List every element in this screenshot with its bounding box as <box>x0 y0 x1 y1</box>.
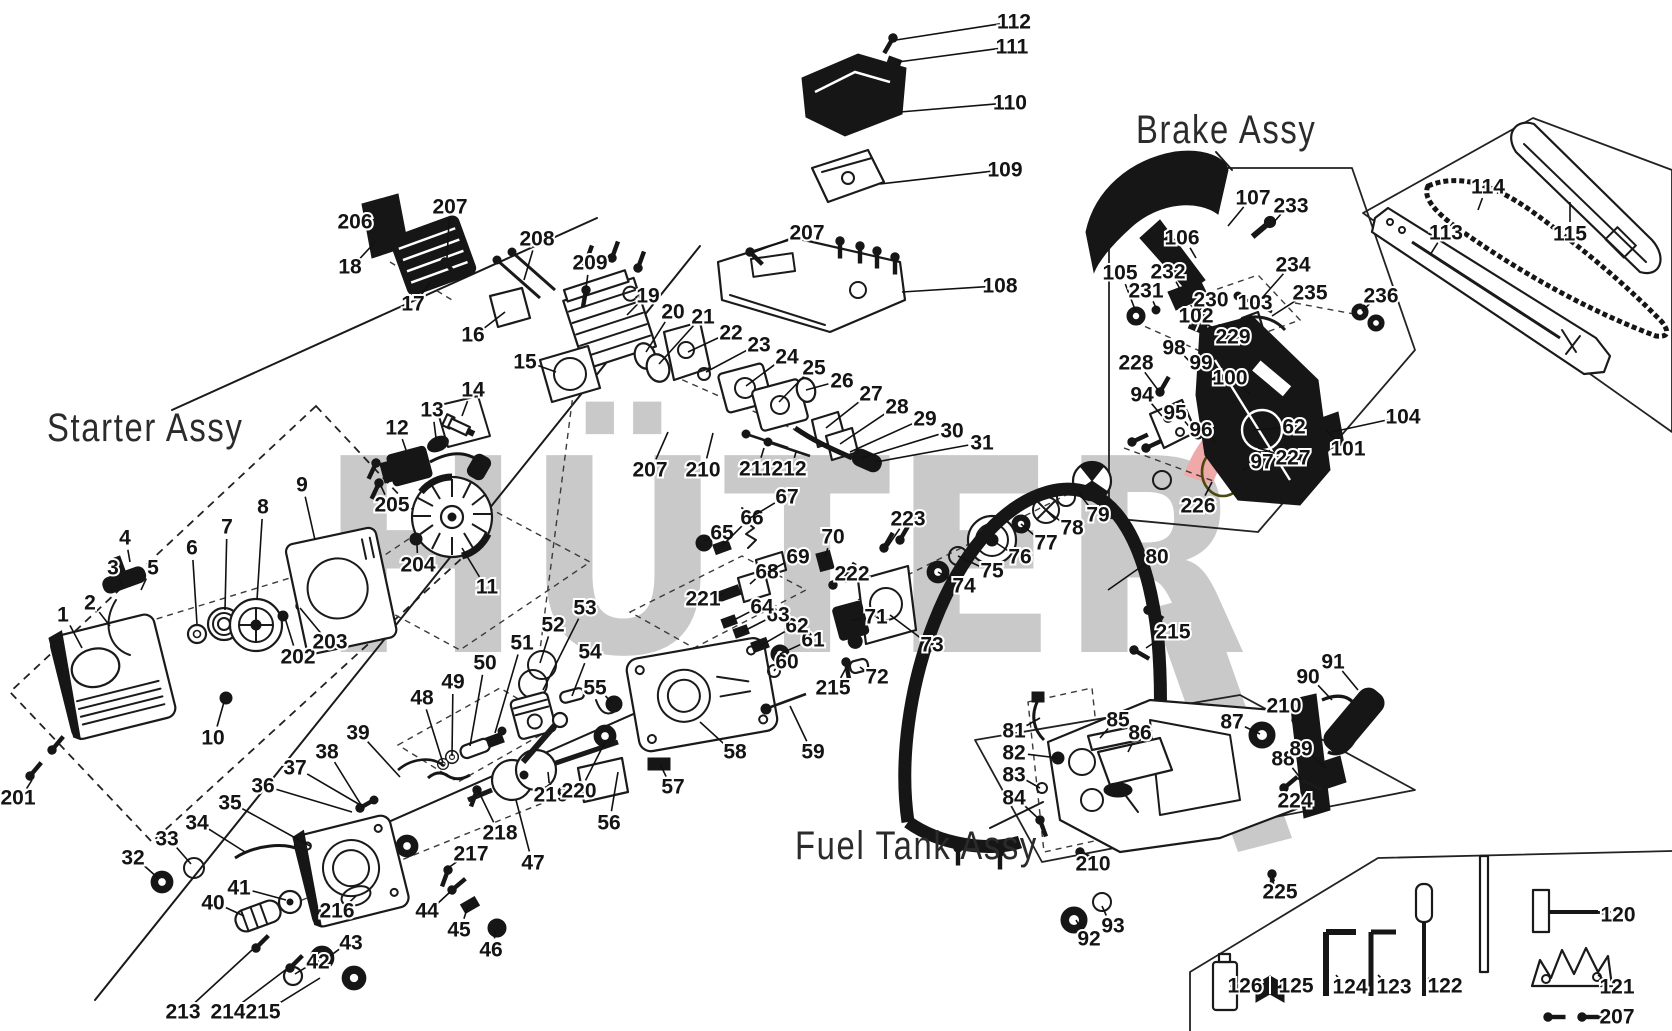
part-label-207: 207 <box>632 459 667 482</box>
part-label-3: 3 <box>107 557 119 580</box>
part-label-234: 234 <box>1275 254 1310 277</box>
part-label-62: 62 <box>1282 416 1305 439</box>
part-label-12: 12 <box>385 417 408 440</box>
part-label-30: 30 <box>940 420 963 443</box>
leader-line <box>1478 198 1482 210</box>
leader-line <box>128 550 130 562</box>
part-label-204: 204 <box>400 554 435 577</box>
part-label-20: 20 <box>661 301 684 324</box>
leader-line <box>239 968 288 1005</box>
leader-line <box>285 618 294 646</box>
part-label-82: 82 <box>1002 742 1025 765</box>
leader-line <box>368 742 400 777</box>
part-label-53: 53 <box>573 597 596 620</box>
part-label-211: 211 <box>739 458 773 481</box>
part-label-93: 93 <box>1101 915 1124 938</box>
air-filter-cover <box>802 54 906 136</box>
leader-line <box>217 702 224 727</box>
part-label-32: 32 <box>121 847 144 870</box>
part-label-122: 122 <box>1427 975 1462 998</box>
part-label-213: 213 <box>165 1001 200 1024</box>
part-label-66: 66 <box>740 507 763 530</box>
exploded-parts-diagram: HÜTER <box>0 0 1672 1031</box>
part-label-41: 41 <box>227 877 251 900</box>
part-label-126: 126 <box>1227 975 1262 998</box>
part-label-212: 212 <box>771 458 806 481</box>
part-label-67: 67 <box>775 486 798 509</box>
leader-line <box>900 104 996 112</box>
part-label-59: 59 <box>801 741 824 764</box>
part-label-100: 100 <box>1212 367 1247 390</box>
starter-assy-title: Starter Assy <box>47 406 243 451</box>
part-label-207: 207 <box>1599 1006 1634 1029</box>
part-label-55: 55 <box>583 677 607 700</box>
part-label-120: 120 <box>1600 904 1635 927</box>
part-label-50: 50 <box>473 652 496 675</box>
leader-line <box>144 865 158 878</box>
part-label-10: 10 <box>201 727 224 750</box>
part-label-103: 103 <box>1237 292 1272 315</box>
part-label-109: 109 <box>987 159 1022 182</box>
part-label-92: 92 <box>1077 928 1100 951</box>
screw-icon <box>881 32 899 55</box>
part-label-90: 90 <box>1296 666 1319 689</box>
part-label-112: 112 <box>997 11 1031 34</box>
leader-line <box>880 171 991 184</box>
part-label-16: 16 <box>461 324 484 347</box>
part-label-5: 5 <box>147 557 159 580</box>
part-label-81: 81 <box>1002 720 1026 743</box>
part-label-22: 22 <box>719 322 742 345</box>
diagram-canvas: HÜTER <box>0 0 1672 1031</box>
rear-grip <box>1319 684 1388 759</box>
part-label-230: 230 <box>1193 289 1228 312</box>
part-label-80: 80 <box>1145 546 1168 569</box>
leader-line <box>209 829 245 852</box>
fuel-cap <box>1249 722 1275 748</box>
toolkit-box-boundary <box>1190 851 1672 1031</box>
part-label-47: 47 <box>521 852 544 875</box>
muffler-gasket <box>490 288 530 327</box>
leader-line <box>305 497 315 540</box>
part-label-208: 208 <box>519 228 554 251</box>
part-label-72: 72 <box>865 666 888 689</box>
part-label-58: 58 <box>723 741 747 764</box>
leader-line <box>1262 274 1283 298</box>
part-label-224: 224 <box>1277 790 1312 813</box>
starter-cover <box>48 609 177 741</box>
part-label-94: 94 <box>1130 384 1154 407</box>
file <box>1480 856 1488 972</box>
leader-line <box>452 694 453 756</box>
part-label-79: 79 <box>1086 504 1109 527</box>
leader-line <box>438 892 450 903</box>
part-label-221: 221 <box>685 588 720 611</box>
bar-chain-boundary <box>1363 118 1672 432</box>
part-label-40: 40 <box>201 892 224 915</box>
part-label-7: 7 <box>221 516 233 539</box>
part-label-56: 56 <box>597 812 620 835</box>
part-label-9: 9 <box>296 474 308 497</box>
part-label-115: 115 <box>1553 223 1587 246</box>
part-label-34: 34 <box>185 812 209 835</box>
leader-line <box>193 950 252 1004</box>
part-label-220: 220 <box>561 780 596 803</box>
part-label-232: 232 <box>1150 261 1185 284</box>
part-label-48: 48 <box>410 687 434 710</box>
part-label-104: 104 <box>1385 406 1420 429</box>
part-label-83: 83 <box>1002 764 1025 787</box>
part-label-215: 215 <box>245 1001 280 1024</box>
part-label-28: 28 <box>885 396 909 419</box>
part-label-101: 101 <box>1330 438 1365 461</box>
leader-line <box>257 519 262 600</box>
part-label-18: 18 <box>338 256 362 279</box>
part-label-108: 108 <box>982 275 1017 298</box>
part-label-17: 17 <box>401 293 424 316</box>
part-label-25: 25 <box>802 357 826 380</box>
part-label-31: 31 <box>970 432 994 455</box>
part-label-84: 84 <box>1002 787 1026 810</box>
part-label-207: 207 <box>789 222 824 245</box>
part-label-74: 74 <box>952 575 976 598</box>
part-label-75: 75 <box>980 560 1004 583</box>
part-label-43: 43 <box>339 932 362 955</box>
part-label-77: 77 <box>1034 532 1057 555</box>
part-label-106: 106 <box>1164 227 1199 250</box>
part-label-60: 60 <box>775 651 798 674</box>
part-label-96: 96 <box>1189 419 1212 442</box>
part-label-95: 95 <box>1163 402 1187 425</box>
leader-line <box>902 287 986 292</box>
part-label-4: 4 <box>119 527 131 550</box>
leader-line <box>335 762 363 808</box>
part-label-2: 2 <box>84 592 96 615</box>
part-label-205: 205 <box>374 494 409 517</box>
part-label-210: 210 <box>1266 695 1301 718</box>
part-label-42: 42 <box>306 951 329 974</box>
part-label-11: 11 <box>476 576 499 599</box>
part-label-14: 14 <box>461 379 485 402</box>
part-label-24: 24 <box>775 346 799 369</box>
part-label-99: 99 <box>1189 352 1212 375</box>
leader-line <box>1228 207 1244 226</box>
part-label-124: 124 <box>1332 976 1367 999</box>
part-label-216: 216 <box>319 900 354 923</box>
part-label-121: 121 <box>1599 976 1634 999</box>
part-label-52: 52 <box>541 614 564 637</box>
part-label-51: 51 <box>510 632 534 655</box>
fuel-tank-assy-title: Fuel Tank Assy <box>795 824 1038 869</box>
part-label-71: 71 <box>864 606 888 629</box>
part-label-217: 217 <box>453 843 488 866</box>
part-label-26: 26 <box>830 370 853 393</box>
leader-line <box>225 539 227 610</box>
leader-line <box>516 800 529 851</box>
part-label-35: 35 <box>218 792 242 815</box>
part-label-36: 36 <box>251 775 274 798</box>
leader-line <box>1250 314 1251 318</box>
leader-line <box>1342 671 1358 690</box>
part-label-13: 13 <box>420 399 443 422</box>
part-label-27: 27 <box>859 383 882 406</box>
part-label-33: 33 <box>155 828 178 851</box>
brake-assy-title: Brake Assy <box>1136 108 1316 153</box>
part-label-45: 45 <box>447 919 471 942</box>
part-label-123: 123 <box>1376 976 1411 999</box>
part-label-214: 214 <box>210 1001 245 1024</box>
leader-line <box>426 709 443 763</box>
part-label-225: 225 <box>1262 881 1297 904</box>
part-label-54: 54 <box>578 641 602 664</box>
part-label-76: 76 <box>1008 546 1031 569</box>
cylinder-gasket <box>540 346 600 402</box>
part-label-73: 73 <box>920 634 943 657</box>
part-label-91: 91 <box>1321 651 1345 674</box>
part-label-110: 110 <box>993 92 1027 115</box>
part-label-89: 89 <box>1289 738 1312 761</box>
rope-pulley <box>230 599 282 651</box>
part-label-202: 202 <box>280 646 315 669</box>
part-label-86: 86 <box>1128 722 1151 745</box>
part-label-209: 209 <box>572 252 607 275</box>
part-label-125: 125 <box>1278 975 1313 998</box>
part-label-207: 207 <box>432 196 467 219</box>
part-label-23: 23 <box>747 334 770 357</box>
part-label-228: 228 <box>1118 352 1153 375</box>
part-label-215: 215 <box>1155 621 1190 644</box>
part-label-235: 235 <box>1292 282 1327 305</box>
part-label-1: 1 <box>57 604 69 627</box>
part-label-226: 226 <box>1180 495 1215 518</box>
part-label-215: 215 <box>815 677 850 700</box>
part-label-206: 206 <box>337 211 372 234</box>
part-label-38: 38 <box>315 741 339 764</box>
part-label-39: 39 <box>346 722 369 745</box>
part-label-236: 236 <box>1363 285 1398 308</box>
leader-line <box>193 560 197 624</box>
part-label-85: 85 <box>1106 709 1130 732</box>
part-label-78: 78 <box>1060 517 1084 540</box>
part-label-64: 64 <box>750 596 774 619</box>
part-label-210: 210 <box>685 459 720 482</box>
starter-handle <box>95 550 147 595</box>
part-label-46: 46 <box>479 939 502 962</box>
leader-line <box>898 49 998 62</box>
part-label-57: 57 <box>661 776 684 799</box>
part-label-19: 19 <box>636 285 659 308</box>
part-label-210: 210 <box>1075 853 1110 876</box>
part-label-223: 223 <box>890 508 925 531</box>
part-label-113: 113 <box>1429 222 1463 245</box>
part-label-201: 201 <box>0 787 35 810</box>
part-label-227: 227 <box>1275 447 1310 470</box>
part-label-70: 70 <box>821 526 844 549</box>
part-label-233: 233 <box>1273 195 1308 218</box>
part-label-218: 218 <box>482 822 517 845</box>
part-label-69: 69 <box>786 546 809 569</box>
part-label-8: 8 <box>257 496 269 519</box>
part-label-98: 98 <box>1162 337 1186 360</box>
air-filter <box>812 150 884 202</box>
part-label-203: 203 <box>312 631 347 654</box>
leader-line <box>177 848 191 864</box>
part-label-222: 222 <box>834 563 869 586</box>
leader-line <box>242 809 310 846</box>
part-label-65: 65 <box>710 522 734 545</box>
part-label-15: 15 <box>513 351 537 374</box>
part-label-37: 37 <box>283 757 306 780</box>
part-label-229: 229 <box>1215 326 1250 349</box>
part-label-44: 44 <box>415 900 439 923</box>
part-label-111: 111 <box>996 36 1029 59</box>
part-label-114: 114 <box>1471 176 1505 199</box>
part-label-6: 6 <box>186 537 198 560</box>
part-label-29: 29 <box>913 408 936 431</box>
part-label-21: 21 <box>691 306 715 329</box>
flywheel <box>412 477 492 557</box>
leader-line <box>896 24 1000 40</box>
part-label-49: 49 <box>441 671 464 694</box>
part-label-87: 87 <box>1220 711 1243 734</box>
part-label-107: 107 <box>1235 187 1270 210</box>
part-label-68: 68 <box>755 561 779 584</box>
part-label-97: 97 <box>1250 451 1273 474</box>
